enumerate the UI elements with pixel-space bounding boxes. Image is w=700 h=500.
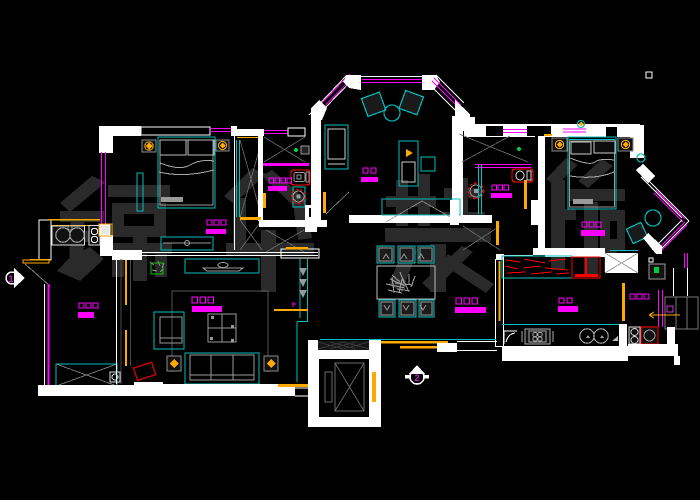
svg-text:2: 2 xyxy=(414,373,419,383)
svg-text:1: 1 xyxy=(8,274,13,284)
